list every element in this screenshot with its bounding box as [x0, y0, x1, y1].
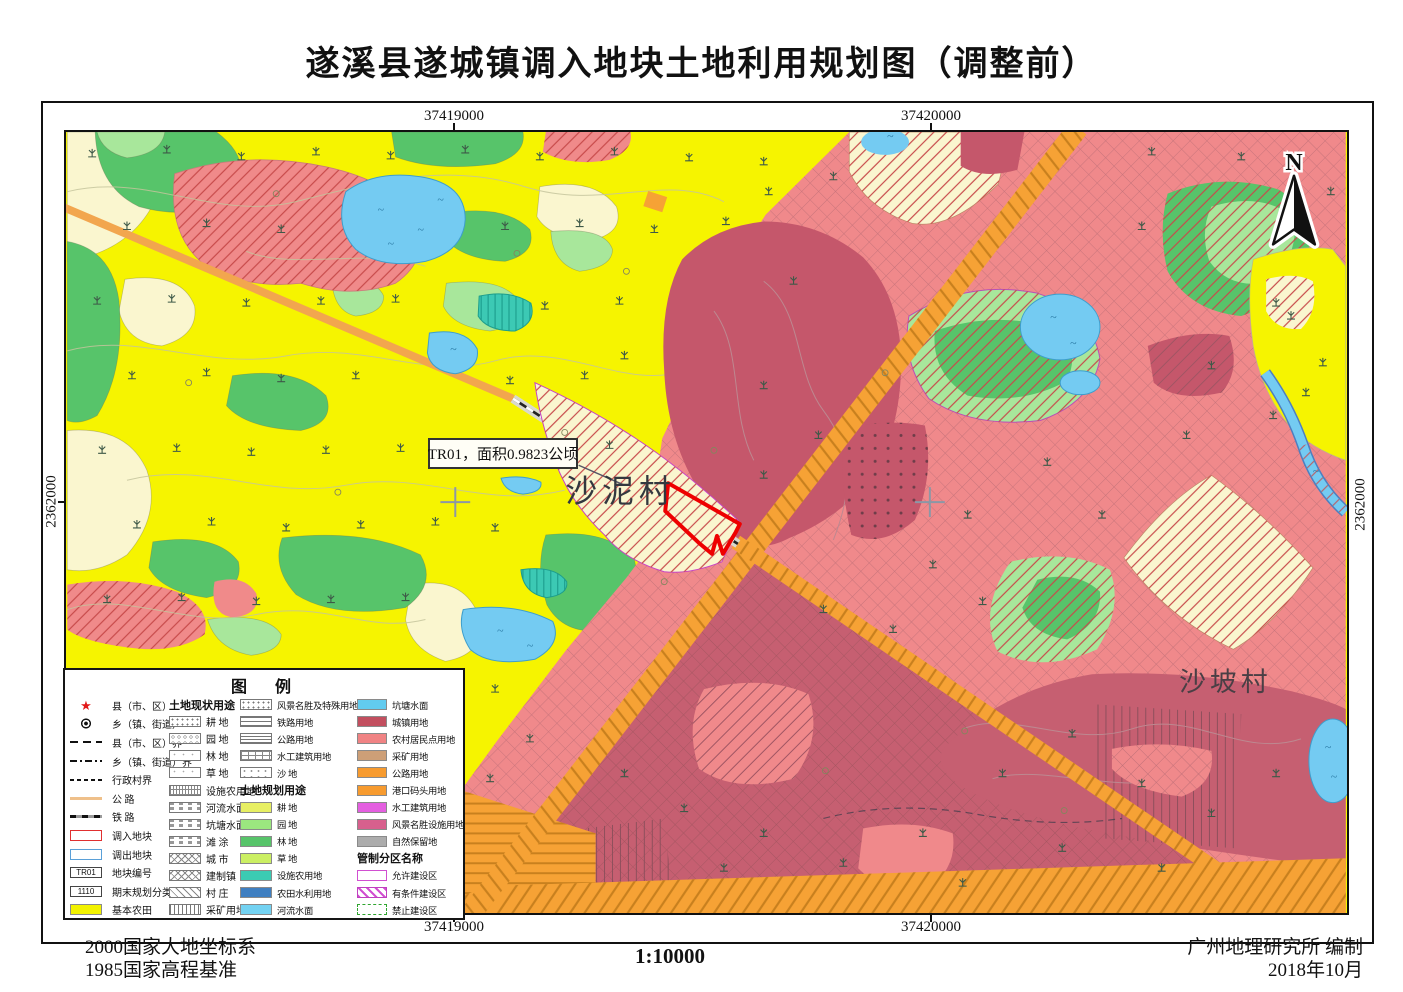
- legend-item-label: 公 路: [112, 791, 135, 806]
- legend-item-label: 公路用地: [392, 766, 428, 780]
- legend-symbol-sw: [240, 904, 272, 915]
- footer-datum: 2000国家大地坐标系 1985国家高程基准: [85, 936, 256, 982]
- legend-item-label: 水工建筑用地: [392, 800, 446, 814]
- legend-symbol-box-code: 1110: [70, 886, 102, 897]
- legend-item-label: 自然保留地: [392, 834, 437, 848]
- legend-item: 农田水利用地: [240, 884, 360, 901]
- legend-item: 林 地: [240, 833, 360, 850]
- legend-symbol-sw: [357, 802, 387, 813]
- legend-item-label: 调出地块: [112, 847, 152, 862]
- legend-symbol-line-finedash: [70, 779, 102, 781]
- legend-symbol-sw: [357, 785, 387, 796]
- legend-item-label: 河流水面: [277, 903, 313, 917]
- north-label: N: [1285, 150, 1302, 176]
- legend-item: 公路用地: [240, 730, 360, 747]
- legend-item-label: 行政村界: [112, 772, 152, 787]
- legend-item-label: 有条件建设区: [392, 886, 446, 900]
- legend-symbol-star: [70, 700, 102, 711]
- legend-item-label: 城 市: [206, 851, 229, 866]
- legend-item-label: 城镇用地: [392, 715, 428, 729]
- legend-item: 沙 地: [240, 764, 360, 781]
- legend-symbol-sw: [70, 904, 102, 915]
- legend-symbol-pat-diag: [169, 887, 201, 898]
- legend-symbol-sw: [357, 750, 387, 761]
- svg-text:~: ~: [497, 623, 504, 637]
- legend-symbol-sw: [357, 716, 387, 727]
- legend-item-label: 公路用地: [277, 732, 313, 746]
- legend-symbol-zone-forbid: [357, 904, 387, 915]
- legend-symbol-zone-allow: [357, 870, 387, 881]
- legend-column-status2-planning: 风景名胜及特殊用地铁路用地公路用地水工建筑用地沙 地土地规划用途耕 地园 地林 …: [240, 696, 360, 918]
- legend-item-label: 港口码头用地: [392, 783, 446, 797]
- legend-item-label: 村 庄: [206, 885, 229, 900]
- legend-item: 农村居民点用地: [357, 730, 465, 747]
- grid-tick: [930, 123, 932, 130]
- legend-symbol-sw: [240, 853, 272, 864]
- legend-item-label: 水工建筑用地: [277, 749, 331, 763]
- legend-symbol-sw: [357, 733, 387, 744]
- legend-item: 园 地: [240, 816, 360, 833]
- svg-text:~: ~: [450, 342, 457, 356]
- legend-item-label: 林 地: [277, 834, 297, 848]
- legend-symbol-pat-dots2: [240, 767, 272, 778]
- legend-item-label: 地块编号: [112, 865, 152, 880]
- legend-symbol-pat-rings: [169, 733, 201, 744]
- legend-item-label: 禁止建设区: [392, 903, 437, 917]
- legend-item-label: 铁 路: [112, 809, 135, 824]
- legend-column-planning2-zoning: 坑塘水面城镇用地农村居民点用地采矿用地公路用地港口码头用地水工建筑用地风景名胜设…: [357, 696, 465, 918]
- legend-symbol-pat-dots: [240, 699, 272, 710]
- legend-symbol-pat-dots: [169, 716, 201, 727]
- legend-symbol-sw: [240, 887, 272, 898]
- svg-text:~: ~: [1325, 740, 1332, 754]
- legend-item: 水工建筑用地: [240, 747, 360, 764]
- legend-symbol-sw: [357, 819, 387, 830]
- legend-item-label: 耕 地: [277, 800, 297, 814]
- svg-text:~: ~: [1313, 464, 1320, 478]
- credit-line2: 2018年10月: [1187, 959, 1363, 982]
- legend-item: 铁路用地: [240, 713, 360, 730]
- legend-item-label: 坑塘水面: [392, 698, 428, 712]
- legend-symbol-zone-cond: [357, 887, 387, 898]
- legend-item-label: 风景名胜及特殊用地: [277, 698, 358, 712]
- legend-item-label: 园 地: [277, 817, 297, 831]
- legend-symbol-pat-dashrow: [169, 802, 201, 813]
- legend-item: 采矿用地: [357, 747, 465, 764]
- legend-item: 设施农用地: [240, 867, 360, 884]
- legend-item: 有条件建设区: [357, 884, 465, 901]
- legend-symbol-box-red: [70, 830, 102, 841]
- legend-item-label: 基本农田: [112, 902, 152, 917]
- footer-credit: 广州地理研究所 编制 2018年10月: [1187, 936, 1363, 982]
- legend-symbol-town: [70, 718, 102, 729]
- legend-symbol-box-code: TR01: [70, 867, 102, 878]
- legend-item: 港口码头用地: [357, 781, 465, 798]
- legend-item-label: 草 地: [206, 765, 229, 780]
- legend-item-label: 草 地: [277, 851, 297, 865]
- legend-symbol-sw: [240, 802, 272, 813]
- svg-text:~: ~: [1070, 336, 1077, 350]
- legend-symbol-sw: [357, 836, 387, 847]
- legend-symbol-pat-grid: [169, 785, 201, 796]
- svg-text:~: ~: [887, 132, 894, 143]
- legend-item-label: 设施农用地: [277, 868, 322, 882]
- map-scale: 1:10000: [560, 944, 780, 969]
- grid-label-right: 2362000: [1353, 450, 1370, 560]
- legend-section-header: 管制分区名称: [357, 850, 465, 867]
- plot-annotation-callout: TR01，面积0.9823公顷: [428, 438, 578, 469]
- svg-text:~: ~: [527, 638, 534, 652]
- page: { "title": "遂溪县遂城镇调入地块土地利用规划图（调整前）", "ma…: [0, 0, 1403, 992]
- village-label-shapo: 沙坡村: [1179, 667, 1272, 697]
- grid-tick: [930, 915, 932, 922]
- legend-item-label: 滩 涂: [206, 834, 229, 849]
- legend-symbol-line-dashdot: [70, 760, 102, 762]
- legend-item-label: 县（市、区）: [112, 698, 172, 713]
- legend-item: 自然保留地: [357, 833, 465, 850]
- legend-item-label: 沙 地: [277, 766, 297, 780]
- legend-item-label: 调入地块: [112, 828, 152, 843]
- legend-item: 风景名胜设施用地: [357, 816, 465, 833]
- legend-item-label: 铁路用地: [277, 715, 313, 729]
- legend-symbol-line-road: [70, 797, 102, 800]
- village-label-shani: 沙泥村: [565, 474, 675, 509]
- legend-item: 公路用地: [357, 764, 465, 781]
- svg-text:~: ~: [388, 236, 395, 250]
- legend-item-label: 农田水利用地: [277, 886, 331, 900]
- legend-item: 城镇用地: [357, 713, 465, 730]
- legend-symbol-line-rail: [70, 815, 102, 818]
- legend-item: 草 地: [240, 850, 360, 867]
- legend-symbol-sw: [240, 870, 272, 881]
- legend-item: 河流水面: [240, 901, 360, 918]
- credit-line1: 广州地理研究所 编制: [1187, 936, 1363, 959]
- legend-symbol-sw: [240, 836, 272, 847]
- legend-item-label: 采矿用地: [392, 749, 428, 763]
- legend-item-label: 建制镇: [206, 868, 236, 883]
- svg-text:~: ~: [437, 193, 444, 207]
- legend: 图 例 县（市、区）乡（镇、街道）县（市、区）界乡（镇、街道）界行政村界公 路铁…: [63, 668, 465, 920]
- legend-symbol-pat-hlines2: [240, 733, 272, 744]
- legend-symbol-line-dash: [70, 741, 102, 743]
- legend-columns: 县（市、区）乡（镇、街道）县（市、区）界乡（镇、街道）界行政村界公 路铁 路调入…: [65, 696, 463, 918]
- svg-text:~: ~: [1050, 310, 1057, 324]
- legend-symbol-sw: [357, 699, 387, 710]
- legend-symbol-pat-hlines: [240, 716, 272, 727]
- legend-symbol-pat-vert: [169, 904, 201, 915]
- legend-item-label: 耕 地: [206, 714, 229, 729]
- legend-item: 禁止建设区: [357, 901, 465, 918]
- legend-section-header: 土地规划用途: [240, 781, 360, 798]
- legend-item-label: 风景名胜设施用地: [392, 817, 464, 831]
- legend-item: 允许建设区: [357, 867, 465, 884]
- legend-symbol-pat-dashrow: [169, 836, 201, 847]
- legend-item: 风景名胜及特殊用地: [240, 696, 360, 713]
- legend-item-label: 林 地: [206, 748, 229, 763]
- legend-symbol-box-blue: [70, 849, 102, 860]
- legend-item-label: 允许建设区: [392, 868, 437, 882]
- legend-item-label: 农村居民点用地: [392, 732, 455, 746]
- legend-symbol-sw: [357, 767, 387, 778]
- datum-line2: 1985国家高程基准: [85, 959, 256, 982]
- page-title: 遂溪县遂城镇调入地块土地利用规划图（调整前）: [0, 36, 1403, 85]
- legend-item: 耕 地: [240, 799, 360, 816]
- legend-symbol-pat-faint: [169, 750, 201, 761]
- svg-text:~: ~: [417, 222, 424, 236]
- legend-symbol-pat-diamond: [169, 870, 201, 881]
- svg-text:~: ~: [378, 203, 385, 217]
- legend-item: 水工建筑用地: [357, 799, 465, 816]
- datum-line1: 2000国家大地坐标系: [85, 936, 256, 959]
- legend-item-label: 园 地: [206, 731, 229, 746]
- legend-symbol-pat-dashrow: [169, 819, 201, 830]
- legend-symbol-pat-diamond: [169, 853, 201, 864]
- legend-item: 坑塘水面: [357, 696, 465, 713]
- legend-symbol-pat-brick: [240, 750, 272, 761]
- svg-text:~: ~: [1331, 770, 1338, 784]
- grid-tick: [453, 123, 455, 130]
- legend-symbol-pat-faint: [169, 767, 201, 778]
- legend-title: 图 例: [65, 673, 463, 697]
- legend-symbol-sw: [240, 819, 272, 830]
